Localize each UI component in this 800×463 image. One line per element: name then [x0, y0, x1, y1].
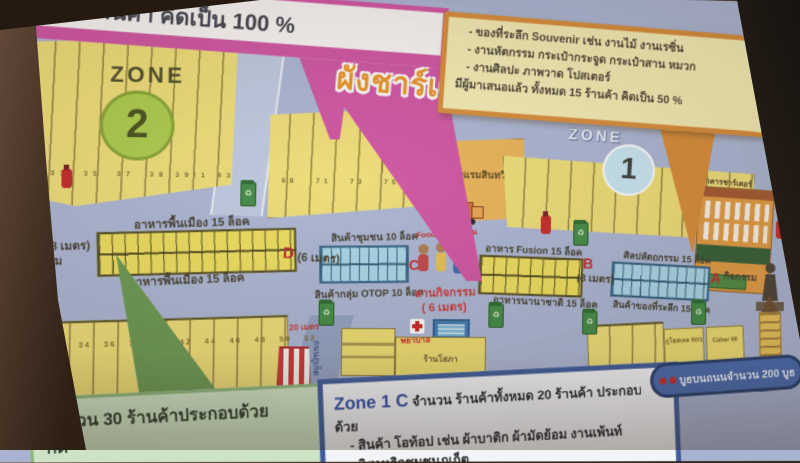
row-b-grid — [478, 255, 584, 298]
fire-extinguisher-icon — [541, 215, 551, 234]
row-a-letter: A — [710, 269, 721, 286]
zone1c-zone-label: Zone 1 C — [333, 391, 408, 415]
zone2-word: ZONE — [110, 63, 185, 90]
recycle-bin-icon: ♻ — [488, 304, 504, 328]
top-banner-text: นวน 30 ร้านค้า คิดเป็น 100 % — [4, 0, 296, 38]
row-d-top-label: อาหารพื้นเมือง 15 ล็อค — [134, 211, 250, 234]
recycle-bin-icon: ♻ — [573, 222, 589, 246]
photo-of-projected-slide: { "slide": { "banner_text": "นวน 30 ร้าน… — [0, 0, 800, 450]
first-aid-label: พยาบาล — [400, 333, 430, 347]
souvenir-callout: - ของที่ระลึก Souvenir เช่น งานไม้ งานเร… — [437, 11, 777, 138]
projected-slide-market-layout: ZONE 2 31 33 35 37 38 39/1 43/1 43 45 68… — [0, 0, 800, 463]
row-a-grid — [610, 261, 710, 301]
cabar-stall-label: Cabar 96 — [707, 336, 743, 344]
row-d-bottom-label: อาหารพื้นเมือง 15 ล็อค — [128, 268, 244, 292]
row-b-letter: B — [583, 255, 594, 272]
red-dot-icon — [669, 376, 676, 384]
zone2-stall-block: ZONE 2 31 33 35 37 38 39/1 43/1 43 45 — [5, 27, 241, 213]
green-callout: จำนวน 30 ร้านค้าประกอบด้วย ก็ต — [28, 383, 333, 463]
zone2-number: 2 — [126, 102, 149, 147]
recycle-bin-icon: ♻ — [318, 302, 334, 326]
row-a-side-label: กิจกรรม — [723, 269, 757, 286]
row-d-size-right: (6 เมตร) — [297, 247, 340, 268]
row-d-letter: D — [282, 244, 294, 262]
recycle-bin-icon: ♻ — [582, 311, 598, 335]
first-aid-cross-icon — [410, 319, 425, 334]
activity-plaza-size: ( 6 เมตร) — [421, 297, 466, 317]
shop-name: ร้านโสภา — [396, 352, 485, 366]
hostel-stall-label: ภูโฮสเทล 90/1 — [665, 336, 703, 348]
zone1-word: ZONE — [568, 125, 623, 146]
fire-extinguisher-icon — [776, 220, 786, 238]
zone2-circle-badge: 2 — [99, 90, 175, 161]
recycle-bin-icon: ♻ — [240, 182, 256, 206]
fire-extinguisher-icon — [44, 298, 55, 317]
street-booth-text: บูธบนถนนจำนวน 200 บูธ — [679, 363, 796, 388]
zone1-number: 1 — [620, 152, 638, 186]
row-b-size: (3 เมตร) — [576, 271, 614, 288]
row-d-activity-label: งานกิจกรรม — [0, 251, 63, 272]
zone1c-callout: Zone 1 C จำนวน ร้านค้าทั้งหมด 20 ร้านค้า… — [317, 362, 681, 463]
bottom-shop-block-1 — [341, 328, 396, 376]
recycle-bin-icon: ♻ — [691, 301, 706, 325]
road-width-label: 20 เมตร — [289, 320, 319, 335]
row-c-top-label: สินค้าชุมชน 10 ล็อค — [331, 229, 418, 247]
red-dot-icon — [659, 377, 666, 385]
fire-extinguisher-icon — [61, 169, 72, 188]
